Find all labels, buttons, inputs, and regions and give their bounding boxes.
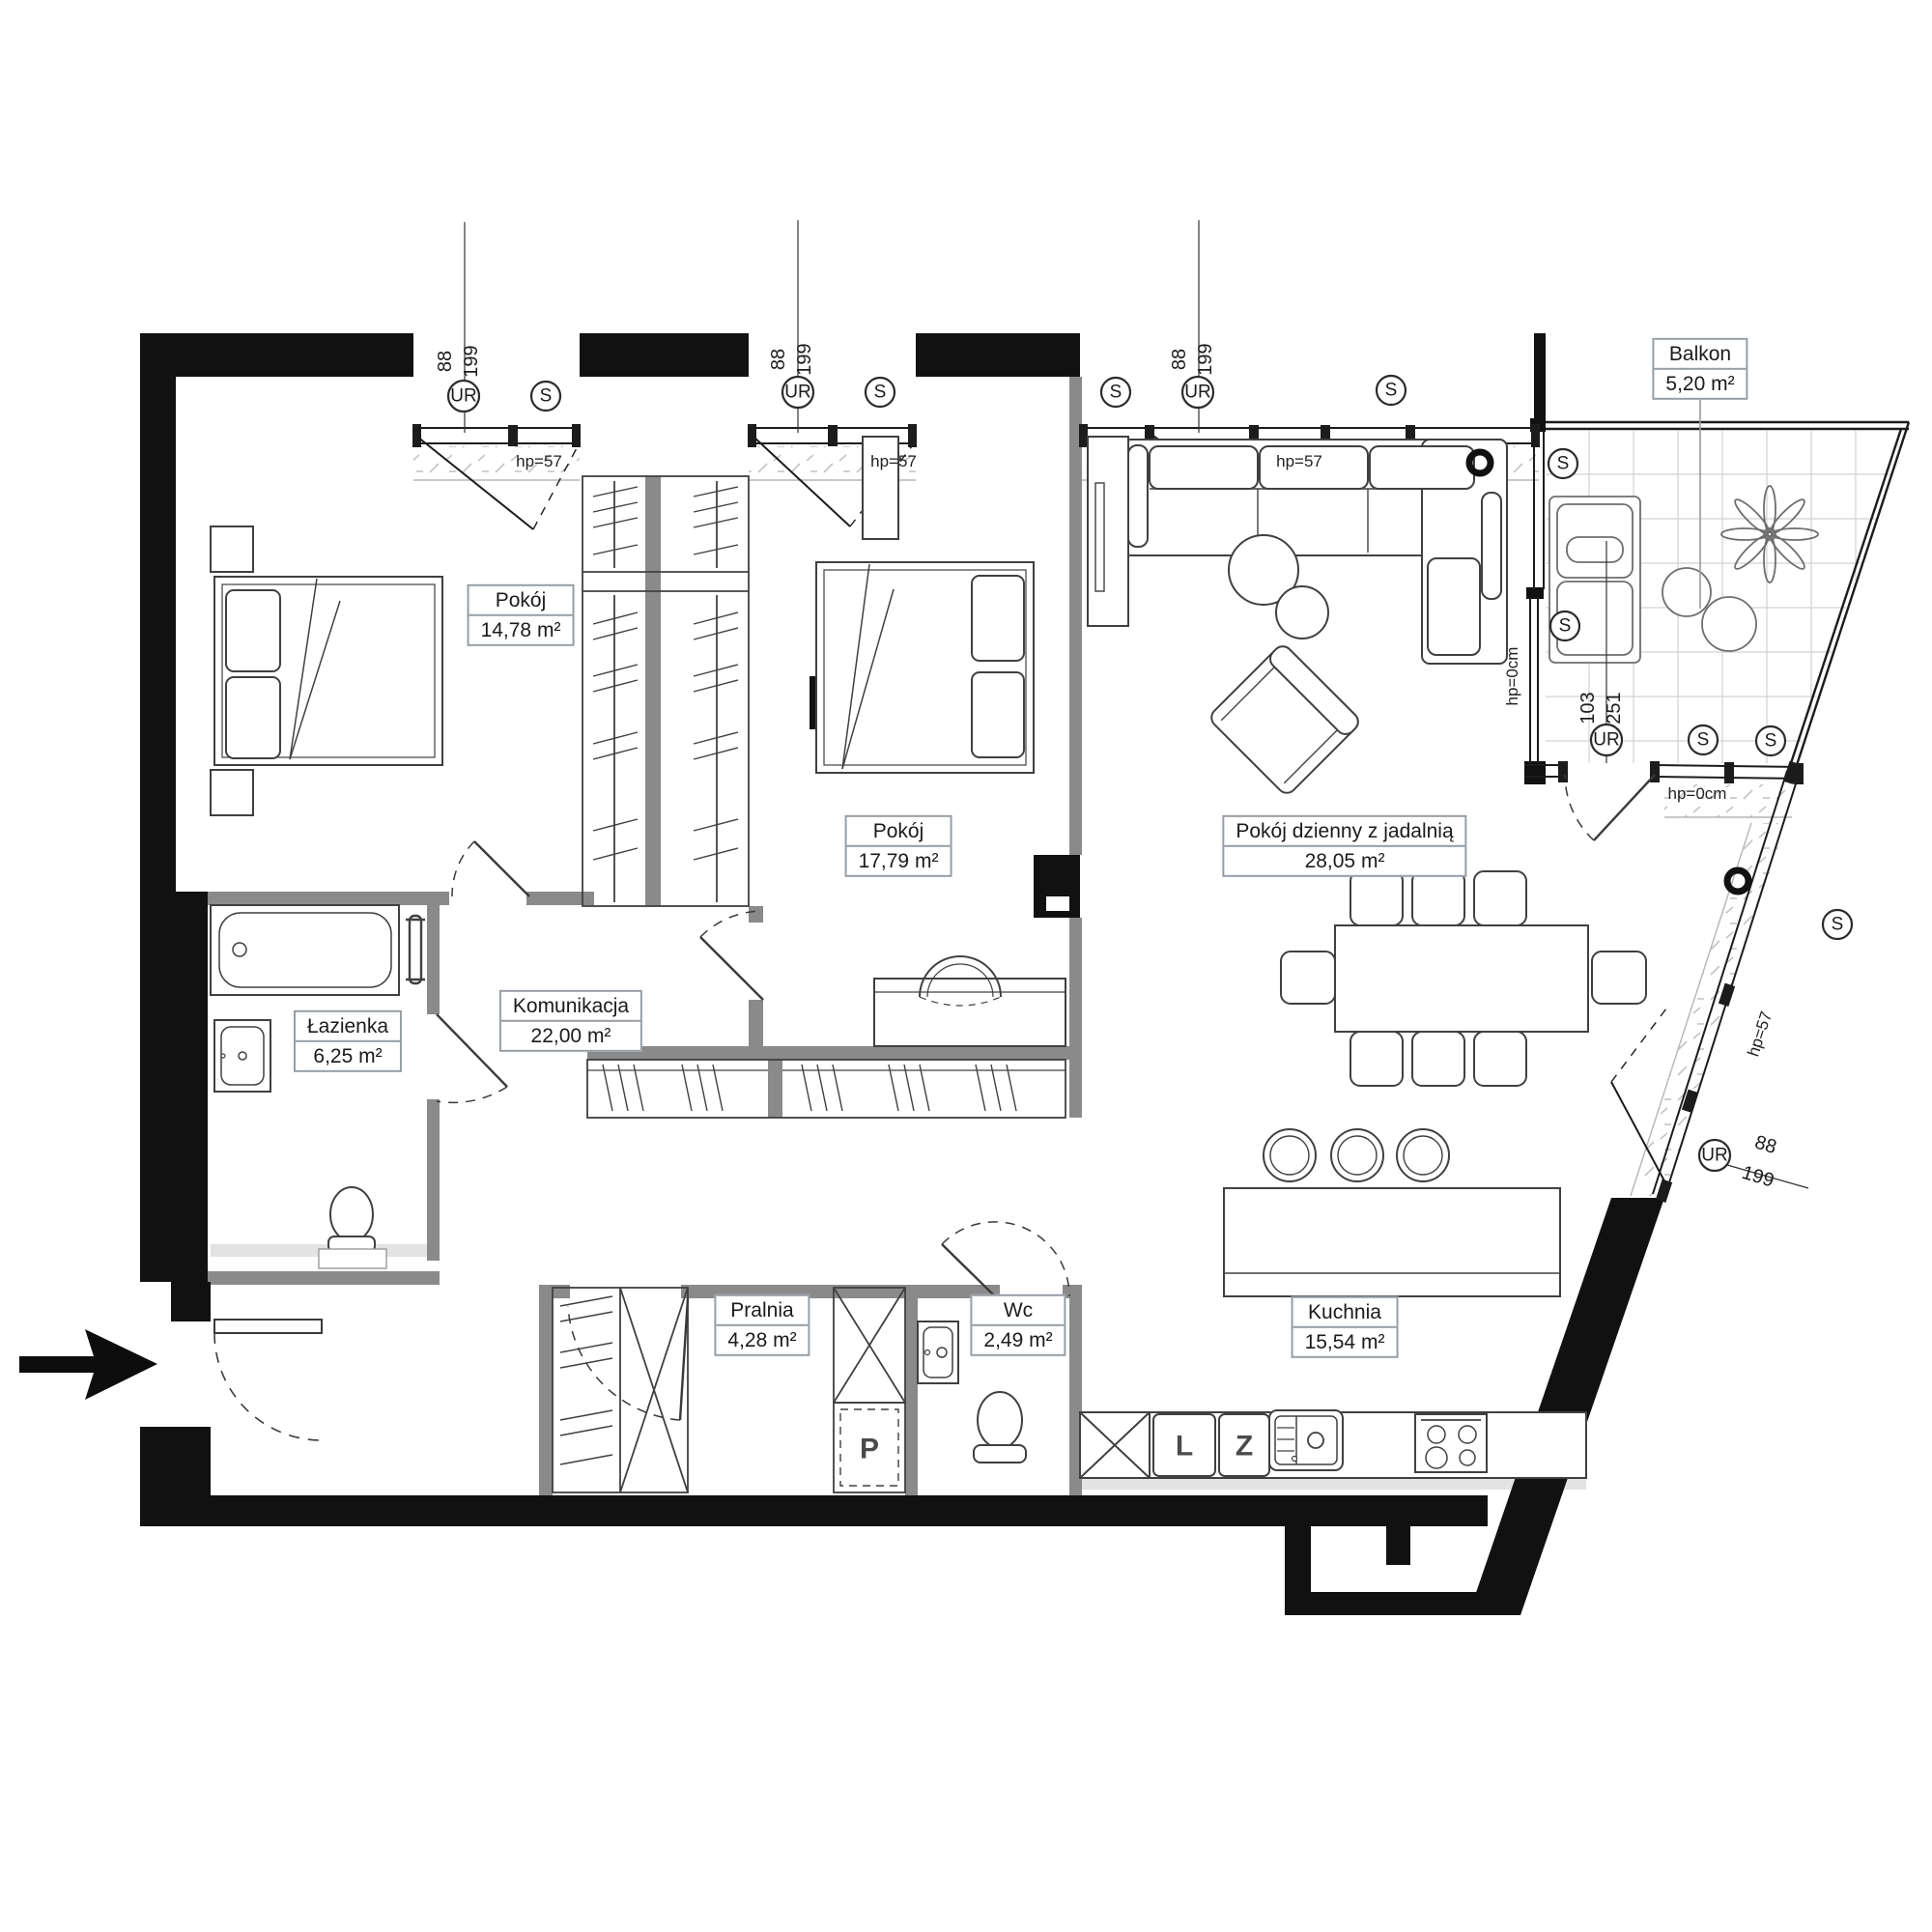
chair (1350, 871, 1403, 925)
room-area: 22,00 m² (501, 1022, 640, 1050)
room-label-kitchen: Kuchnia 15,54 m² (1292, 1296, 1399, 1358)
svg-text:UR: UR (1184, 383, 1210, 403)
dining-table-set (1281, 871, 1646, 1086)
hp-label: hp=57 (870, 452, 917, 470)
washbasin (214, 1020, 270, 1092)
svg-text:UR: UR (450, 386, 476, 407)
room-label-pokoj-2: Pokój 17,79 m² (845, 815, 952, 877)
svg-text:UR: UR (1701, 1146, 1727, 1166)
dishwasher-letter: Z (1236, 1431, 1253, 1463)
svg-text:S: S (1765, 731, 1777, 752)
room-area: 15,54 m² (1293, 1328, 1397, 1356)
s-marker: S (1377, 376, 1406, 405)
floor-plan: P (0, 0, 1932, 1932)
ur-marker: UR (448, 381, 479, 412)
towel-radiator (406, 916, 425, 983)
s-marker: S (1756, 726, 1785, 755)
double-bed (816, 562, 1034, 773)
svg-text:S: S (1557, 454, 1570, 474)
chair (1474, 1032, 1526, 1086)
s-marker: S (1550, 611, 1579, 640)
kitchen-island (1224, 1129, 1560, 1296)
svg-text:S: S (1385, 381, 1398, 401)
bedroom2-furniture (816, 437, 1065, 1046)
room-name: Kuchnia (1293, 1298, 1397, 1328)
s-marker: S (1823, 910, 1852, 939)
wc-toilet (974, 1392, 1026, 1463)
hp-label: hp=57 (516, 452, 562, 470)
room-area: 5,20 m² (1654, 370, 1746, 398)
bathroom-fixtures (211, 905, 425, 1268)
window-width-dim: 88 (1169, 349, 1190, 370)
toilet (328, 1187, 375, 1252)
room-area: 4,28 m² (716, 1326, 808, 1354)
room-label-pokoj-1: Pokój 14,78 m² (468, 584, 575, 646)
room-name: Balkon (1654, 340, 1746, 370)
balcony-door-width-dim: 103 (1577, 692, 1599, 724)
ur-marker: UR (1591, 724, 1622, 755)
window-width-dim: 88 (768, 349, 789, 370)
bedroom2-door (700, 911, 763, 1000)
s-marker: S (531, 382, 560, 411)
room-area: 28,05 m² (1224, 847, 1464, 875)
bar-stools (1264, 1129, 1449, 1181)
chair (1592, 952, 1646, 1004)
svg-text:UR: UR (1593, 730, 1619, 751)
bedroom1-door (452, 841, 529, 896)
ur-marker: UR (1699, 1140, 1730, 1171)
s-marker: S (1548, 449, 1577, 478)
armchair (1207, 642, 1362, 797)
room-name: Wc (972, 1296, 1064, 1326)
nightstand (211, 526, 253, 572)
svg-text:S: S (1110, 383, 1122, 403)
ur-marker: UR (1182, 377, 1213, 408)
column-notch (1046, 896, 1069, 911)
svg-text:S: S (1697, 730, 1710, 751)
balcony-door (1565, 775, 1655, 840)
window-height-dim: 199 (1740, 1162, 1776, 1192)
room-label-hallway: Komunikacja 22,00 m² (499, 990, 642, 1052)
dining-table (1335, 925, 1588, 1032)
window-width-dim: 88 (1752, 1131, 1779, 1158)
bathtub (211, 905, 399, 995)
hp-label: hp=0cm (1668, 784, 1727, 803)
svg-text:S: S (1832, 915, 1844, 935)
hanger-symbols (560, 1296, 612, 1464)
room-label-living-room: Pokój dzienny z jadalnią 28,05 m² (1222, 815, 1466, 877)
kitchen-counter (1080, 1410, 1586, 1478)
room-area: 6,25 m² (296, 1042, 400, 1070)
balcony-door-window (1524, 762, 1803, 783)
window-height-dim: 199 (1195, 343, 1216, 375)
window-width-dim: 88 (435, 351, 456, 372)
entrance-door (214, 1320, 322, 1440)
chair (1474, 871, 1526, 925)
hanger-symbols (603, 1065, 1016, 1111)
room-label-wc: Wc 2,49 m² (970, 1294, 1065, 1356)
room-name: Pokój dzienny z jadalnią (1224, 817, 1464, 847)
room-name: Pokój (847, 817, 951, 847)
room-name: Komunikacja (501, 992, 640, 1022)
double-bed (214, 577, 442, 765)
s-marker: S (1689, 725, 1718, 754)
chair (1412, 871, 1464, 925)
chair (1350, 1032, 1403, 1086)
chair (1412, 1032, 1464, 1086)
fridge-letter: L (1176, 1431, 1193, 1463)
s-marker: S (866, 378, 895, 407)
svg-text:S: S (874, 383, 887, 403)
room-name: Pokój (469, 586, 573, 616)
svg-text:S: S (1559, 616, 1572, 637)
svg-text:UR: UR (784, 383, 810, 403)
balcony-table (1662, 568, 1711, 616)
balcony-chair (1702, 597, 1756, 651)
shower-threshold (319, 1249, 386, 1268)
kitchen-sink (1269, 1410, 1343, 1470)
hp-label: hp=57 (1276, 452, 1322, 470)
hall-closet-band (587, 1060, 1065, 1118)
balcony-plant (1721, 486, 1818, 582)
hp-label: hp=57 (1744, 1009, 1776, 1059)
room-area: 17,79 m² (847, 847, 951, 875)
nightstand (211, 770, 253, 815)
balcony-door-height-dim: 251 (1604, 692, 1625, 724)
room-label-bathroom: Łazienka 6,25 m² (294, 1010, 402, 1072)
room-area: 2,49 m² (972, 1326, 1064, 1354)
desk (874, 979, 1065, 1046)
pouf (1276, 586, 1328, 639)
chair (1281, 952, 1335, 1004)
svg-text:S: S (540, 386, 553, 407)
entrance-arrow-icon (19, 1329, 157, 1400)
tv-cabinet (1088, 437, 1128, 626)
bedroom1-furniture (211, 526, 442, 815)
room-label-laundry: Pralnia 4,28 m² (714, 1294, 810, 1356)
cooktop (1415, 1414, 1487, 1472)
room-name: Łazienka (296, 1012, 400, 1042)
balcony-furniture (1549, 486, 1818, 663)
washer-letter: P (860, 1434, 879, 1465)
room-name: Pralnia (716, 1296, 808, 1326)
room-label-balcony: Balkon 5,20 m² (1652, 338, 1747, 400)
ur-marker: UR (782, 377, 813, 408)
built-in-wardrobe (582, 476, 749, 906)
hp-label: hp=0cm (1503, 647, 1521, 706)
window-height-dim: 199 (794, 343, 815, 375)
bathroom-door (437, 1014, 507, 1102)
wc-washbasin (918, 1321, 958, 1383)
s-marker: S (1101, 378, 1130, 407)
floor-plan-drawing: P (0, 0, 1932, 1932)
room-area: 14,78 m² (469, 616, 573, 644)
window-height-dim: 199 (461, 345, 482, 377)
